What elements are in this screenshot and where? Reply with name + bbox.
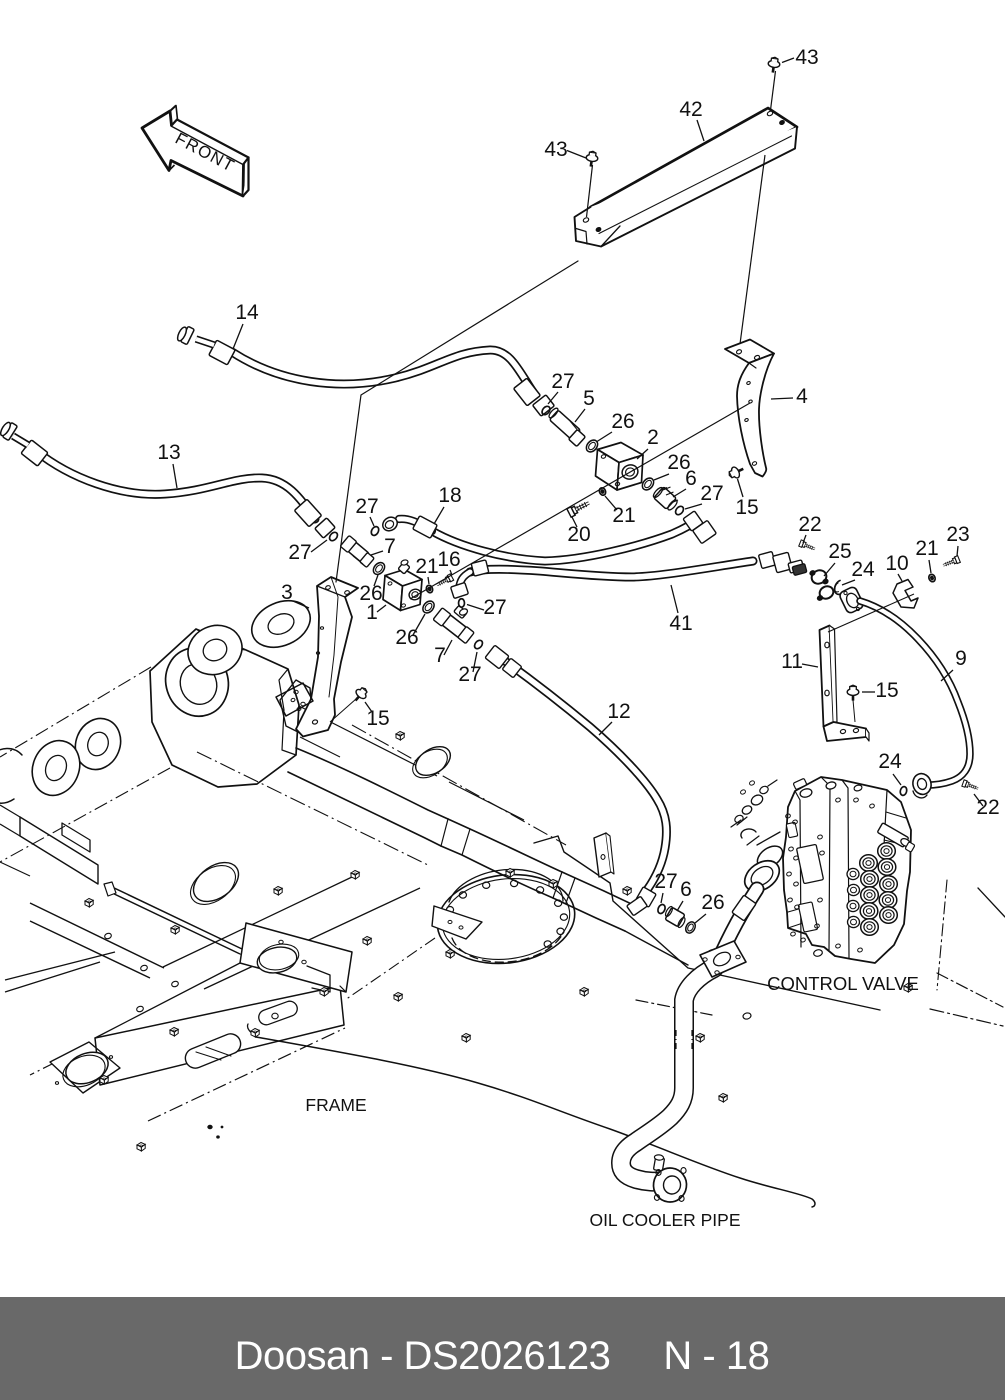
- svg-text:Doosan - DS2026123 N - 18: Doosan - DS2026123 N - 18: [235, 1334, 770, 1378]
- svg-text:43: 43: [544, 138, 567, 161]
- svg-text:6: 6: [680, 878, 692, 901]
- svg-text:16: 16: [437, 548, 460, 571]
- svg-text:22: 22: [798, 513, 821, 536]
- svg-text:15: 15: [735, 496, 758, 519]
- svg-text:13: 13: [157, 441, 180, 464]
- svg-text:25: 25: [828, 540, 851, 563]
- svg-text:4: 4: [796, 385, 808, 408]
- svg-text:6: 6: [685, 467, 697, 490]
- svg-text:FRAME: FRAME: [305, 1095, 366, 1115]
- svg-text:43: 43: [795, 46, 818, 69]
- svg-text:27: 27: [355, 495, 378, 518]
- svg-text:26: 26: [611, 410, 634, 433]
- svg-text:27: 27: [483, 596, 506, 619]
- svg-text:21: 21: [415, 555, 438, 578]
- svg-text:1: 1: [366, 601, 378, 624]
- svg-text:26: 26: [701, 891, 724, 914]
- svg-text:20: 20: [567, 523, 590, 546]
- svg-text:42: 42: [679, 98, 702, 121]
- svg-text:5: 5: [583, 387, 595, 410]
- svg-text:12: 12: [607, 700, 630, 723]
- svg-text:27: 27: [700, 482, 723, 505]
- svg-text:23: 23: [946, 523, 969, 546]
- svg-text:18: 18: [438, 484, 461, 507]
- svg-text:7: 7: [434, 644, 446, 667]
- svg-text:15: 15: [875, 679, 898, 702]
- svg-text:CONTROL VALVE: CONTROL VALVE: [767, 973, 919, 994]
- svg-text:27: 27: [654, 870, 677, 893]
- svg-text:11: 11: [781, 650, 803, 673]
- svg-text:9: 9: [955, 647, 967, 670]
- svg-text:22: 22: [976, 796, 999, 819]
- svg-text:27: 27: [458, 663, 481, 686]
- svg-text:41: 41: [669, 612, 692, 635]
- svg-text:10: 10: [885, 552, 908, 575]
- svg-text:26: 26: [395, 626, 418, 649]
- svg-text:27: 27: [551, 370, 574, 393]
- svg-text:21: 21: [915, 537, 938, 560]
- svg-text:2: 2: [647, 426, 659, 449]
- svg-text:24: 24: [851, 558, 875, 581]
- svg-text:21: 21: [612, 504, 635, 527]
- svg-text:24: 24: [878, 750, 902, 773]
- svg-text:OIL COOLER PIPE: OIL COOLER PIPE: [589, 1210, 740, 1230]
- svg-text:14: 14: [235, 301, 259, 324]
- svg-text:27: 27: [288, 541, 311, 564]
- svg-text:3: 3: [281, 581, 293, 604]
- svg-text:15: 15: [366, 707, 389, 730]
- svg-text:7: 7: [384, 535, 396, 558]
